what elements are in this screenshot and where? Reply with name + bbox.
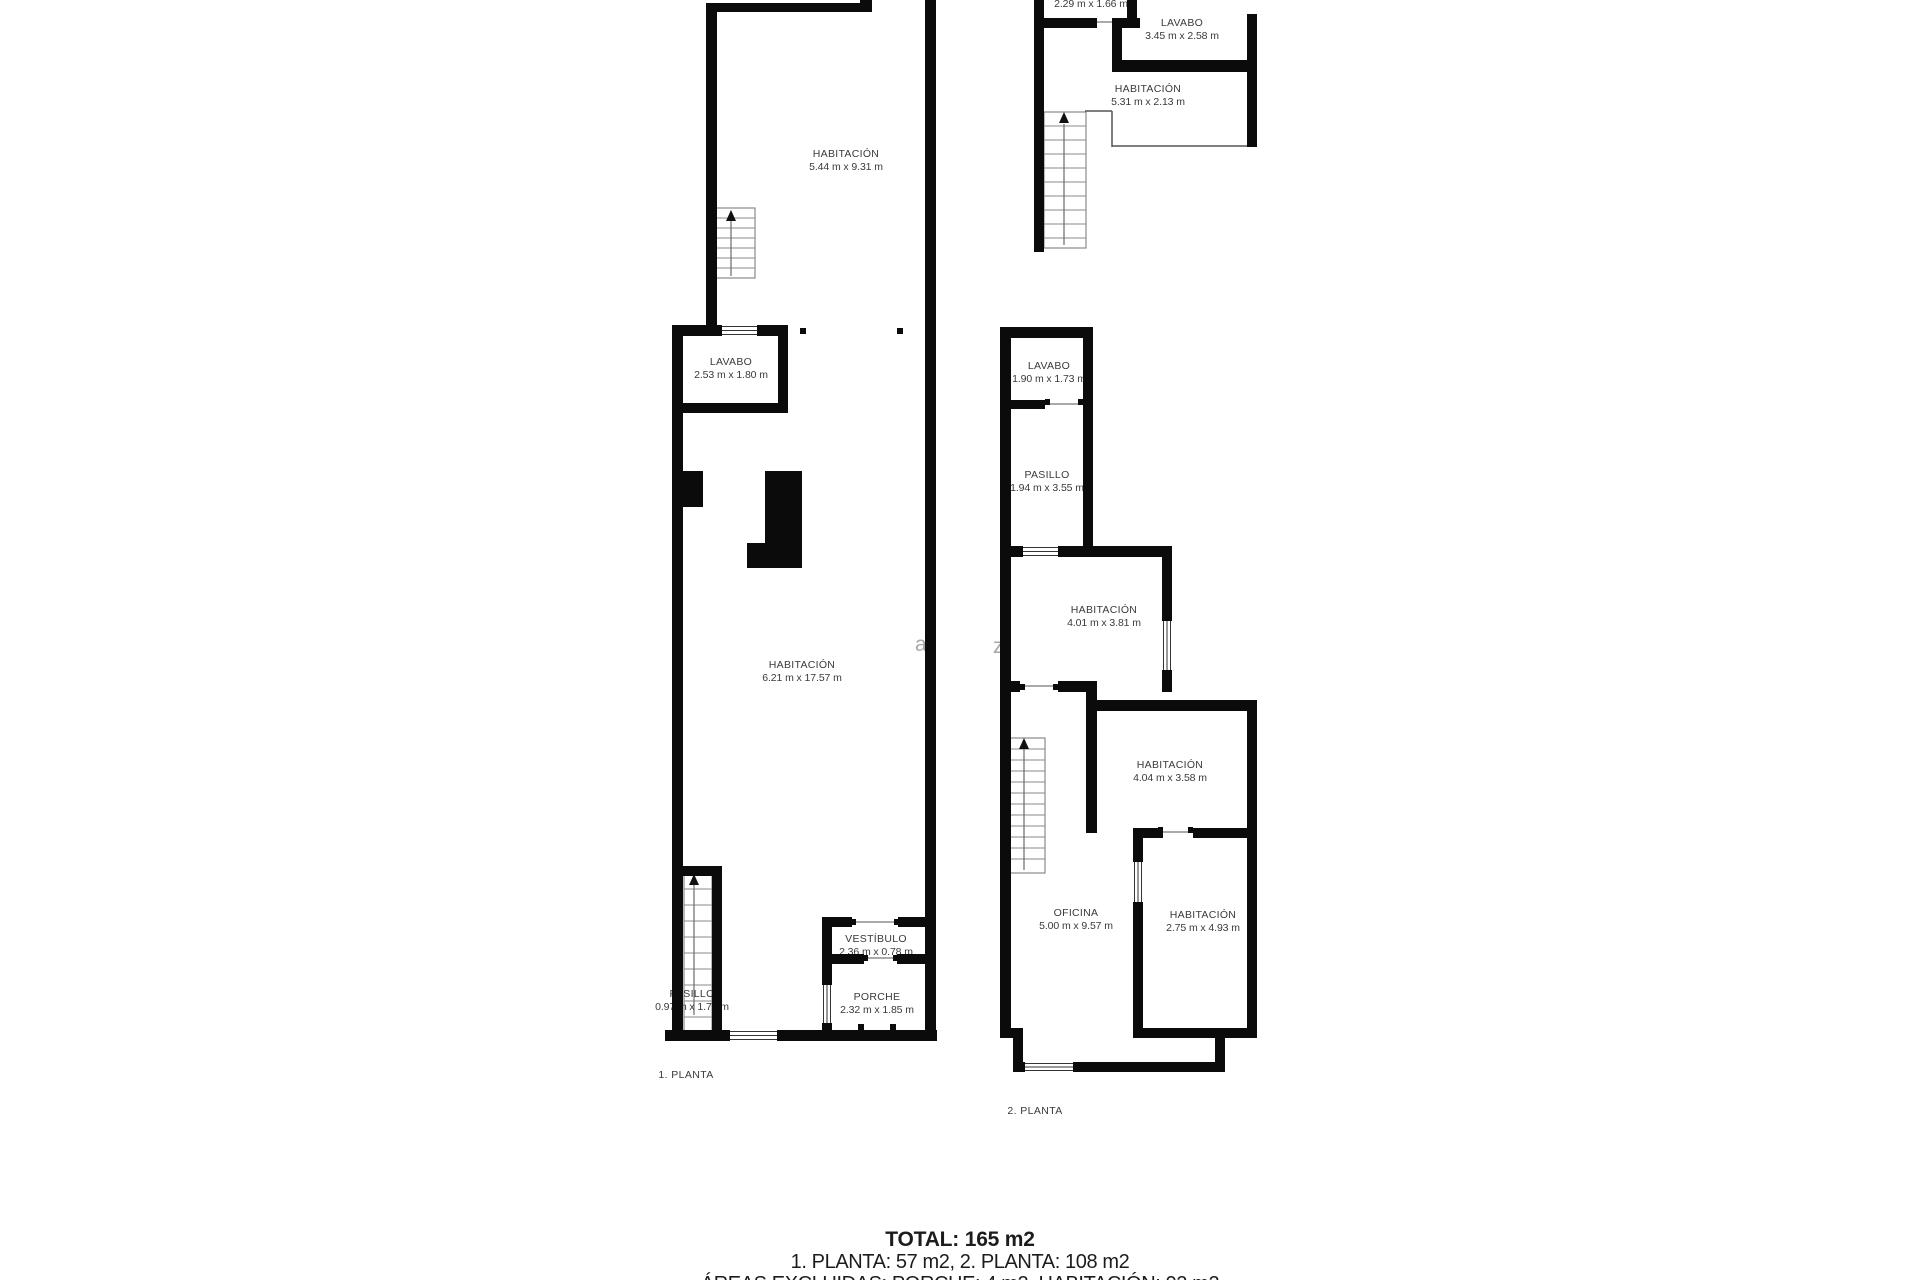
summary-total: TOTAL: 165 m2 xyxy=(0,1228,1920,1252)
summary-floors: 1. PLANTA: 57 m2, 2. PLANTA: 108 m2 xyxy=(0,1251,1920,1274)
floor1-walls xyxy=(665,0,937,1041)
room-name: LAVABO xyxy=(1145,17,1219,30)
room-dims: 2.53 m x 1.80 m xyxy=(694,369,768,382)
room-dims: 1.90 m x 1.73 m xyxy=(1012,373,1086,386)
room-dims: 3.45 m x 2.58 m xyxy=(1145,30,1219,43)
stair-treads xyxy=(714,218,755,268)
room-dims: 5.31 m x 2.13 m xyxy=(1111,96,1185,109)
room-dims: 4.01 m x 3.81 m xyxy=(1067,617,1141,630)
plan-caption-floor1: 1. PLANTA xyxy=(658,1069,713,1081)
room-name: LAVABO xyxy=(1012,360,1086,373)
stair-arrow-up-icon xyxy=(1019,738,1029,749)
stair-arrow-up-icon xyxy=(726,210,736,221)
plan-caption-floor2: 2. PLANTA xyxy=(1007,1105,1062,1117)
stair-treads xyxy=(1005,749,1045,859)
floorplan-sheet: a z xyxy=(0,0,1920,1280)
watermark-letter-z: z xyxy=(993,635,1004,659)
room-dims: 5.44 m x 9.31 m xyxy=(809,161,883,174)
room-label-habitacion-a-f2: HABITACIÓN 4.01 m x 3.81 m xyxy=(1067,604,1141,630)
room-dims: 4.04 m x 3.58 m xyxy=(1133,772,1207,785)
watermark-letter-a: a xyxy=(915,633,927,657)
door-lines-floor2 xyxy=(1020,404,1193,832)
room-name: PORCHE xyxy=(840,991,914,1004)
stair-upper-floor1 xyxy=(714,208,755,278)
room-label-pasillo-f2: PASILLO 1.94 m x 3.55 m xyxy=(1010,469,1084,495)
door-lines-floor1 xyxy=(852,922,898,958)
room-name: HABITACIÓN xyxy=(1111,83,1185,96)
room-label-habitacion-b-f2: HABITACIÓN 4.04 m x 3.58 m xyxy=(1133,759,1207,785)
room-dims: 5.00 m x 9.57 m xyxy=(1039,920,1113,933)
room-label-lavabo-f1: LAVABO 2.53 m x 1.80 m xyxy=(694,356,768,382)
room-name: PASILLO xyxy=(1010,469,1084,482)
room-name: VESTÍBULO xyxy=(839,933,913,946)
room-label-vestibulo-f1: VESTÍBULO 2.36 m x 0.78 m xyxy=(839,933,913,959)
room-label-cut-room-fragment: 2.29 m x 1.66 m xyxy=(1054,0,1128,11)
room-dims: 2.29 m x 1.66 m xyxy=(1054,0,1128,11)
room-dims: 0.97 m x 1.76 m xyxy=(655,1001,729,1014)
floor2-walls xyxy=(1000,327,1257,1072)
room-name: HABITACIÓN xyxy=(1133,759,1207,772)
room-label-lavabo-fragment: LAVABO 3.45 m x 2.58 m xyxy=(1145,17,1219,43)
fragment-walls xyxy=(1034,0,1257,252)
window-f2-divider xyxy=(1133,862,1143,902)
room-name: HABITACIÓN xyxy=(762,659,842,672)
walls-layer xyxy=(0,0,1920,1280)
room-label-habitacion-main-f1: HABITACIÓN 6.21 m x 17.57 m xyxy=(762,659,842,685)
room-dims: 2.36 m x 0.78 m xyxy=(839,946,913,959)
room-name: LAVABO xyxy=(694,356,768,369)
stair-lower-floor1 xyxy=(684,873,712,1031)
stair-treads xyxy=(1044,126,1086,238)
room-dims: 2.32 m x 1.85 m xyxy=(840,1004,914,1017)
fragment-thin-boundary xyxy=(1085,111,1257,147)
window-f1-lavabo-top xyxy=(722,325,757,336)
stair-fragment xyxy=(1044,112,1086,248)
room-dims: 1.94 m x 3.55 m xyxy=(1010,482,1084,495)
window-f2-right-wall xyxy=(1162,621,1172,670)
room-name: HABITACIÓN xyxy=(1166,909,1240,922)
stair-treads xyxy=(684,889,712,1017)
room-label-habitacion-c-f2: HABITACIÓN 2.75 m x 4.93 m xyxy=(1166,909,1240,935)
stairs-and-thin-lines-layer xyxy=(0,0,1920,1280)
room-name: HABITACIÓN xyxy=(1067,604,1141,617)
window-f2-alcove-bottom xyxy=(1025,1062,1073,1072)
window-f1-porche-left xyxy=(822,985,832,1023)
room-label-porche-f1: PORCHE 2.32 m x 1.85 m xyxy=(840,991,914,1017)
labels-layer: HABITACIÓN 5.44 m x 9.31 m LAVABO 2.53 m… xyxy=(0,0,1920,1280)
room-label-habitacion-fragment: HABITACIÓN 5.31 m x 2.13 m xyxy=(1111,83,1185,109)
stair-arrow-up-icon xyxy=(689,874,699,885)
stair-arrow-up-icon xyxy=(1059,112,1069,123)
window-f2-mid-wall xyxy=(1023,546,1058,557)
room-label-oficina-f2: OFICINA 5.00 m x 9.57 m xyxy=(1039,907,1113,933)
room-label-pasillo-f1: PASILLO 0.97 m x 1.76 m xyxy=(655,988,729,1014)
room-label-lavabo-f2: LAVABO 1.90 m x 1.73 m xyxy=(1012,360,1086,386)
room-dims: 6.21 m x 17.57 m xyxy=(762,672,842,685)
stair-floor2 xyxy=(1005,738,1045,873)
summary-excluded-areas: ÁREAS EXCLUIDAS: PORCHE: 4 m2, HABITACIÓ… xyxy=(0,1273,1920,1280)
window-f1-bottom xyxy=(730,1030,777,1041)
room-dims: 2.75 m x 4.93 m xyxy=(1166,922,1240,935)
room-name: OFICINA xyxy=(1039,907,1113,920)
room-name: HABITACIÓN xyxy=(809,148,883,161)
room-name: PASILLO xyxy=(655,988,729,1001)
room-label-habitacion-top-f1: HABITACIÓN 5.44 m x 9.31 m xyxy=(809,148,883,174)
